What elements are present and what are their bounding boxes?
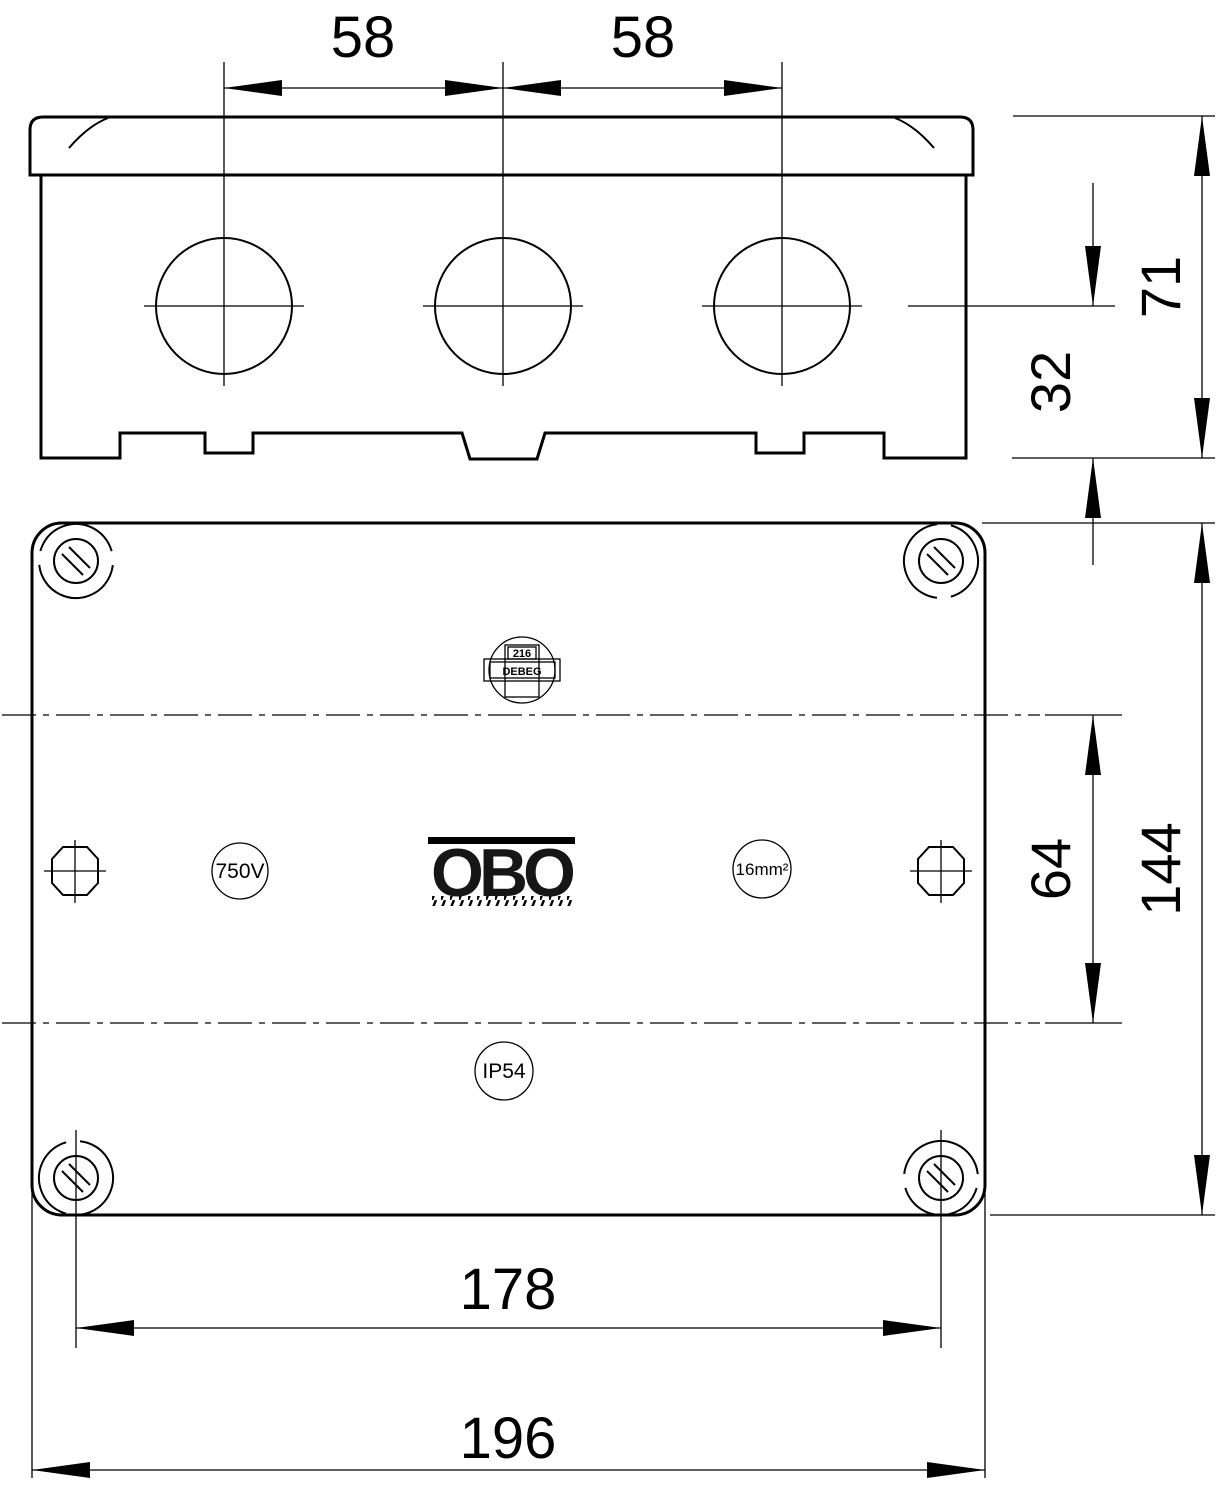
knockout-centerlines-vertical [224, 62, 782, 386]
side-view [30, 62, 1115, 459]
ip-rating-label: IP54 [482, 1060, 526, 1083]
dim-64-label: 64 [1019, 838, 1082, 900]
arrowhead [76, 1320, 134, 1336]
voltage-label: 750V [215, 860, 264, 883]
screw-top-right [919, 539, 963, 583]
badge-number-label: 216 [513, 648, 531, 660]
lid-corner-arc-left [69, 118, 108, 148]
screw-head [919, 539, 963, 583]
dimension-71-32: 71 32 [1012, 116, 1215, 565]
dim-58-left-label: 58 [331, 5, 396, 70]
dim-71-label: 71 [1129, 256, 1192, 318]
screw-head [54, 539, 98, 583]
arrowhead [224, 80, 282, 96]
arrowhead [1085, 246, 1101, 306]
obo-logo: OBO [428, 835, 575, 911]
marking-cross-section: 16mm² [733, 840, 791, 898]
lid-corner-arc-right [895, 118, 934, 148]
screw-slot [927, 547, 955, 575]
arrowhead [883, 1320, 941, 1336]
hex-boss-left [44, 840, 106, 903]
plan-view: 216 DEBEG OBO 750V 16mm² IP54 [2, 512, 1040, 1227]
arrowhead [1085, 458, 1101, 518]
screw-slot [62, 547, 90, 575]
arrowhead [1194, 398, 1210, 458]
arrowhead [1194, 523, 1210, 583]
lid-outline [30, 117, 973, 175]
logo-bottom-bar [428, 896, 575, 906]
hex-boss-right [910, 840, 972, 903]
marking-voltage: 750V [212, 843, 268, 899]
technical-drawing: 58 58 71 32 [0, 0, 1224, 1500]
dimension-178-196: 178 196 [32, 1130, 985, 1478]
certification-badge: 216 DEBEG [484, 637, 560, 703]
drawing-page: 58 58 71 32 [0, 0, 1224, 1500]
screw-top-left [54, 539, 98, 583]
arrowhead [1194, 1155, 1210, 1215]
hex-crosshair [910, 840, 972, 903]
arrowhead [32, 1462, 90, 1478]
dim-178-label: 178 [460, 1257, 557, 1322]
dim-32-label: 32 [1019, 351, 1082, 413]
hex-crosshair [44, 840, 106, 903]
arrowhead [1194, 116, 1210, 176]
arrowhead [1085, 963, 1101, 1023]
cross-section-label: 16mm² [736, 860, 789, 879]
dimension-64-144: 64 144 [982, 523, 1215, 1215]
arrowhead [445, 80, 503, 96]
arrowhead [724, 80, 782, 96]
arrowhead [503, 80, 561, 96]
screw-pocket-arc [892, 512, 990, 610]
badge-name-label: DEBEG [502, 666, 541, 678]
marking-ip-rating: IP54 [475, 1042, 533, 1100]
dim-144-label: 144 [1129, 822, 1192, 915]
screw-pocket-arc [27, 512, 125, 610]
arrowhead [927, 1462, 985, 1478]
dim-58-right-label: 58 [611, 5, 676, 70]
arrowhead [1085, 715, 1101, 775]
dim-196-label: 196 [460, 1406, 557, 1471]
